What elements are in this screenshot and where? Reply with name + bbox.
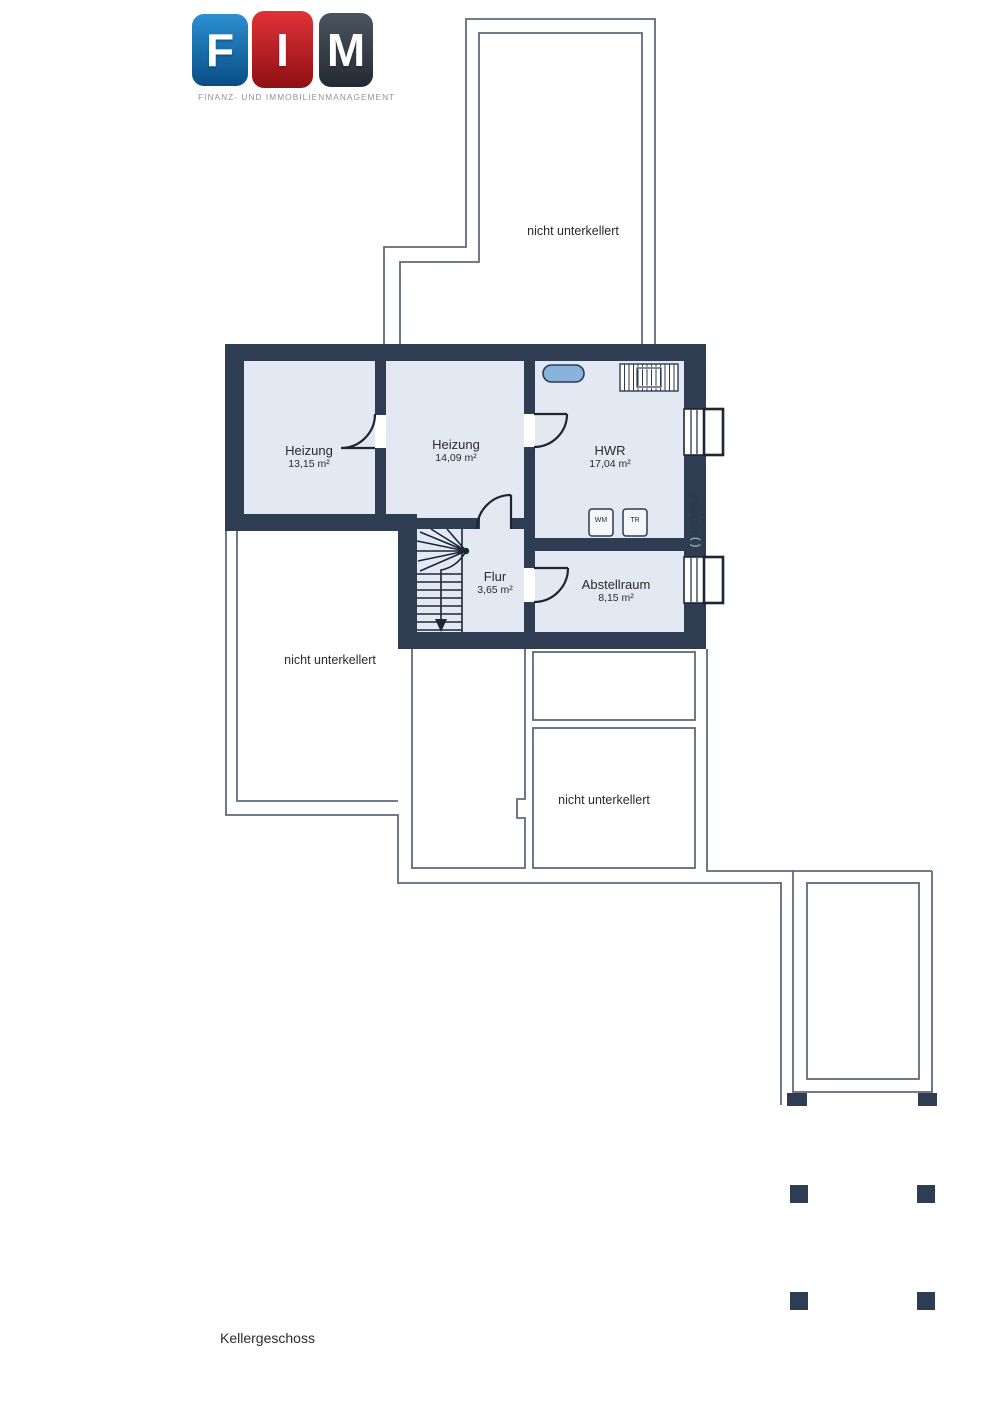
- floorplan-page: F I M FINANZ- UND IMMOBILIENMANAGEMENT: [0, 0, 1000, 1417]
- annotation-not-basemented-left: nicht unterkellert: [284, 653, 376, 667]
- sink-icon: [543, 365, 584, 382]
- annotation-not-basemented-top: nicht unterkellert: [527, 224, 619, 238]
- floor-title: Kellergeschoss: [220, 1330, 315, 1346]
- annotation-not-basemented-bottom: nicht unterkellert: [558, 793, 650, 807]
- onoffice-watermark: ( )onOffice software: [690, 470, 710, 570]
- room-label-flur: Flur 3,65 m²: [477, 570, 513, 596]
- appliance-label-wm: WM: [595, 517, 607, 524]
- room-label-heizung-1: Heizung 13,15 m²: [285, 444, 333, 470]
- appliance-label-tr: TR: [630, 517, 639, 524]
- room-label-hwr: HWR 17,04 m²: [589, 444, 630, 470]
- room-label-abstellraum: Abstellraum 8,15 m²: [582, 578, 651, 604]
- radiator-icon: [620, 364, 678, 391]
- onoffice-brackets-icon: ( ): [689, 537, 701, 547]
- room-label-heizung-2: Heizung 14,09 m²: [432, 438, 480, 464]
- floor-plan-drawing: [0, 0, 1000, 1417]
- pillar-squares: [787, 1093, 937, 1310]
